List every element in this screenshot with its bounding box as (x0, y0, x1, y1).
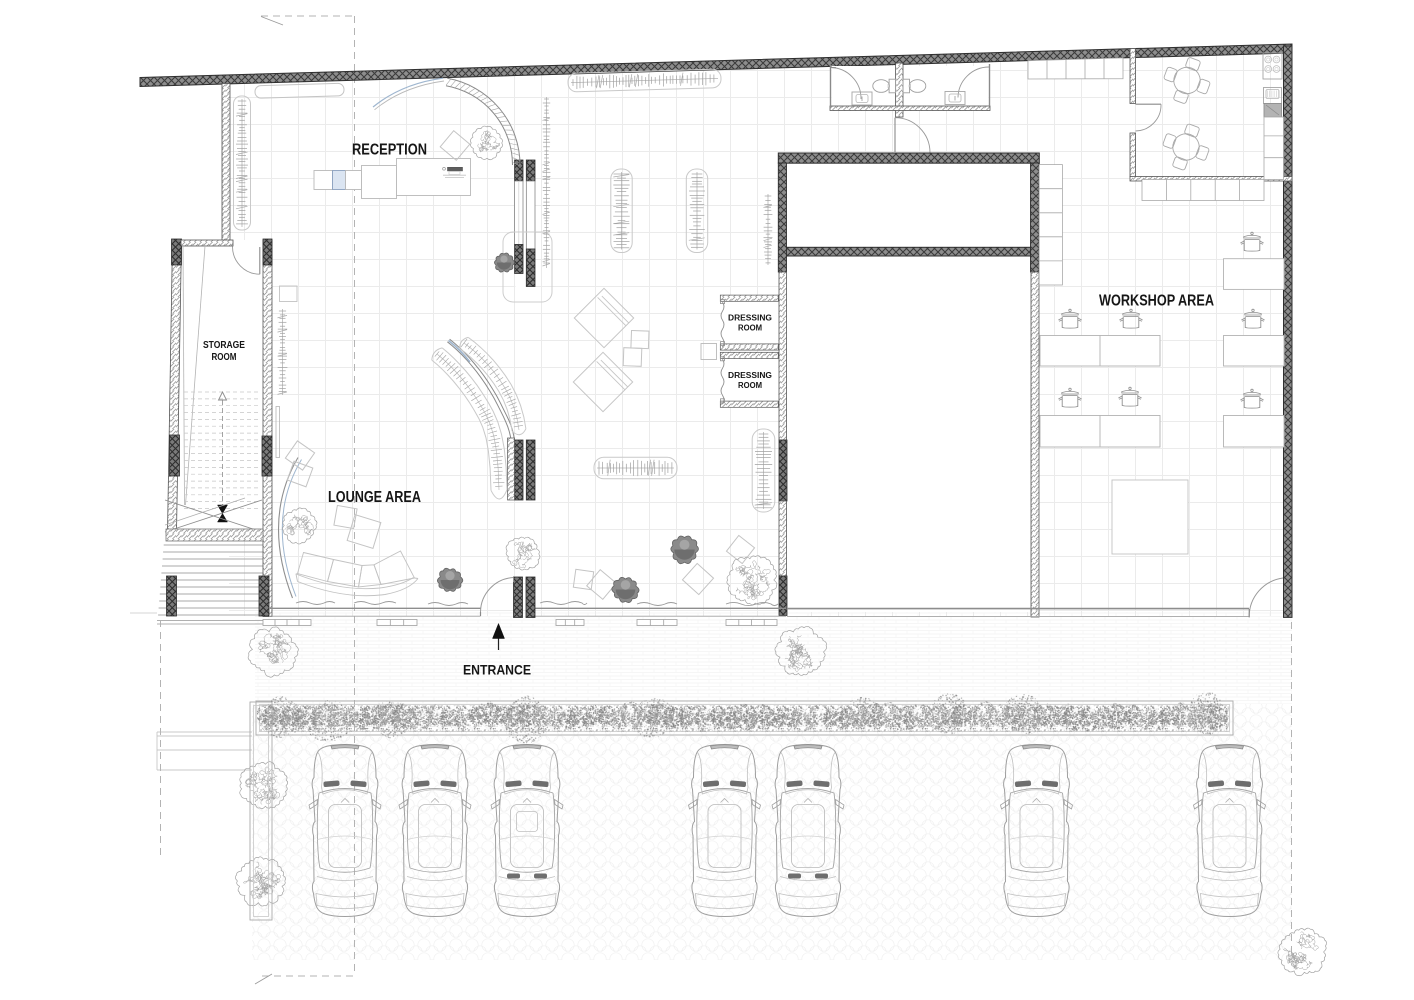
svg-text:ROOM: ROOM (738, 381, 762, 390)
svg-text:STORAGE: STORAGE (203, 340, 245, 351)
svg-text:ROOM: ROOM (738, 324, 762, 333)
svg-text:LOUNGE AREA: LOUNGE AREA (328, 489, 421, 506)
svg-text:ENTRANCE: ENTRANCE (463, 662, 531, 678)
svg-text:DRESSING: DRESSING (728, 314, 772, 323)
svg-text:ROOM: ROOM (212, 352, 237, 363)
svg-text:DRESSING: DRESSING (728, 371, 772, 380)
svg-text:RECEPTION: RECEPTION (352, 142, 427, 159)
svg-text:WORKSHOP AREA: WORKSHOP AREA (1099, 293, 1214, 310)
